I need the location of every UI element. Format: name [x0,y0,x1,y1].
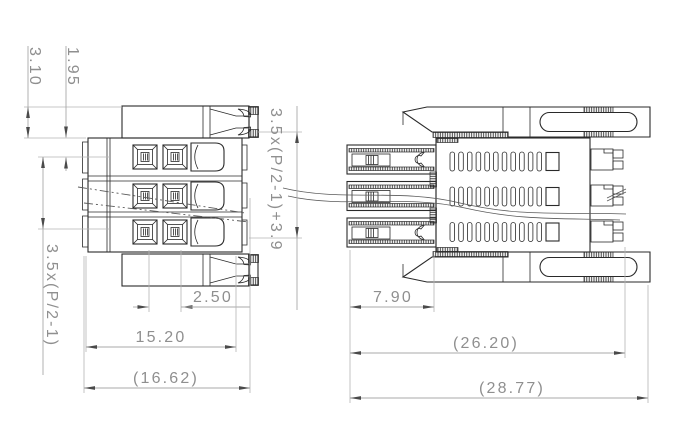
castellation-2 [591,185,626,206]
contact-row-3 [133,218,224,246]
dim-label: (16.62) [133,370,199,387]
vent-slot-row-1 [450,152,559,171]
terminal-contact [163,220,187,244]
dim-label: (28.77) [479,380,545,397]
dim-label: 1.95 [64,47,81,87]
dim-label: 2.50 [193,289,233,306]
terminal-contact [163,184,187,208]
side-body [430,138,590,252]
castellation-3 [591,221,623,242]
side-bottom-latch [403,252,650,283]
pin-rail-3 [347,218,436,247]
dim-row-pitch: 3.5x(P/2-1) [43,157,60,375]
keying-slot [191,143,224,171]
keying-slot [191,182,224,210]
dim-contact-row-offset: 1.95 [64,46,81,171]
terminal-contact [133,145,157,169]
dim-contact-spacing: 2.50 [133,250,250,312]
drawing-canvas: 3.10 1.95 3.5x(P/2-1) 3.5x(P/2-1)+3.9 [0,0,680,440]
pin-rail-2 [347,182,436,211]
phantom-line [84,203,249,222]
vent-slot-row-3 [450,223,559,242]
terminal-contact [163,145,187,169]
pin-rail-1 [347,145,436,174]
terminal-contact [133,184,157,208]
front-top-flange [122,106,259,138]
contact-row-2 [133,182,224,210]
dim-label: 3.5x(P/2-1) [43,244,60,347]
dim-label: 15.20 [135,329,186,346]
dim-label: 7.90 [373,289,413,306]
castellation-1 [591,149,623,170]
front-view [78,106,259,286]
vent-slot-row-2 [450,187,559,206]
contact-row-1 [133,143,224,171]
dim-pin-length: 7.90 [350,250,434,403]
dim-flange-height: 3.10 [26,46,43,138]
side-view [283,107,650,282]
dim-label: 3.10 [26,47,43,87]
front-bottom-flange [122,254,259,286]
dim-label: (26.20) [453,335,519,352]
side-top-latch [403,107,650,138]
dimensions: 3.10 1.95 3.5x(P/2-1) 3.5x(P/2-1)+3.9 [24,46,648,403]
technical-drawing: 3.10 1.95 3.5x(P/2-1) 3.5x(P/2-1)+3.9 [0,0,680,440]
dim-label: 3.5x(P/2-1)+3.9 [267,108,284,252]
break-curve [288,196,620,220]
front-body [83,138,248,252]
terminal-contact [133,220,157,244]
keying-slot [191,218,224,246]
